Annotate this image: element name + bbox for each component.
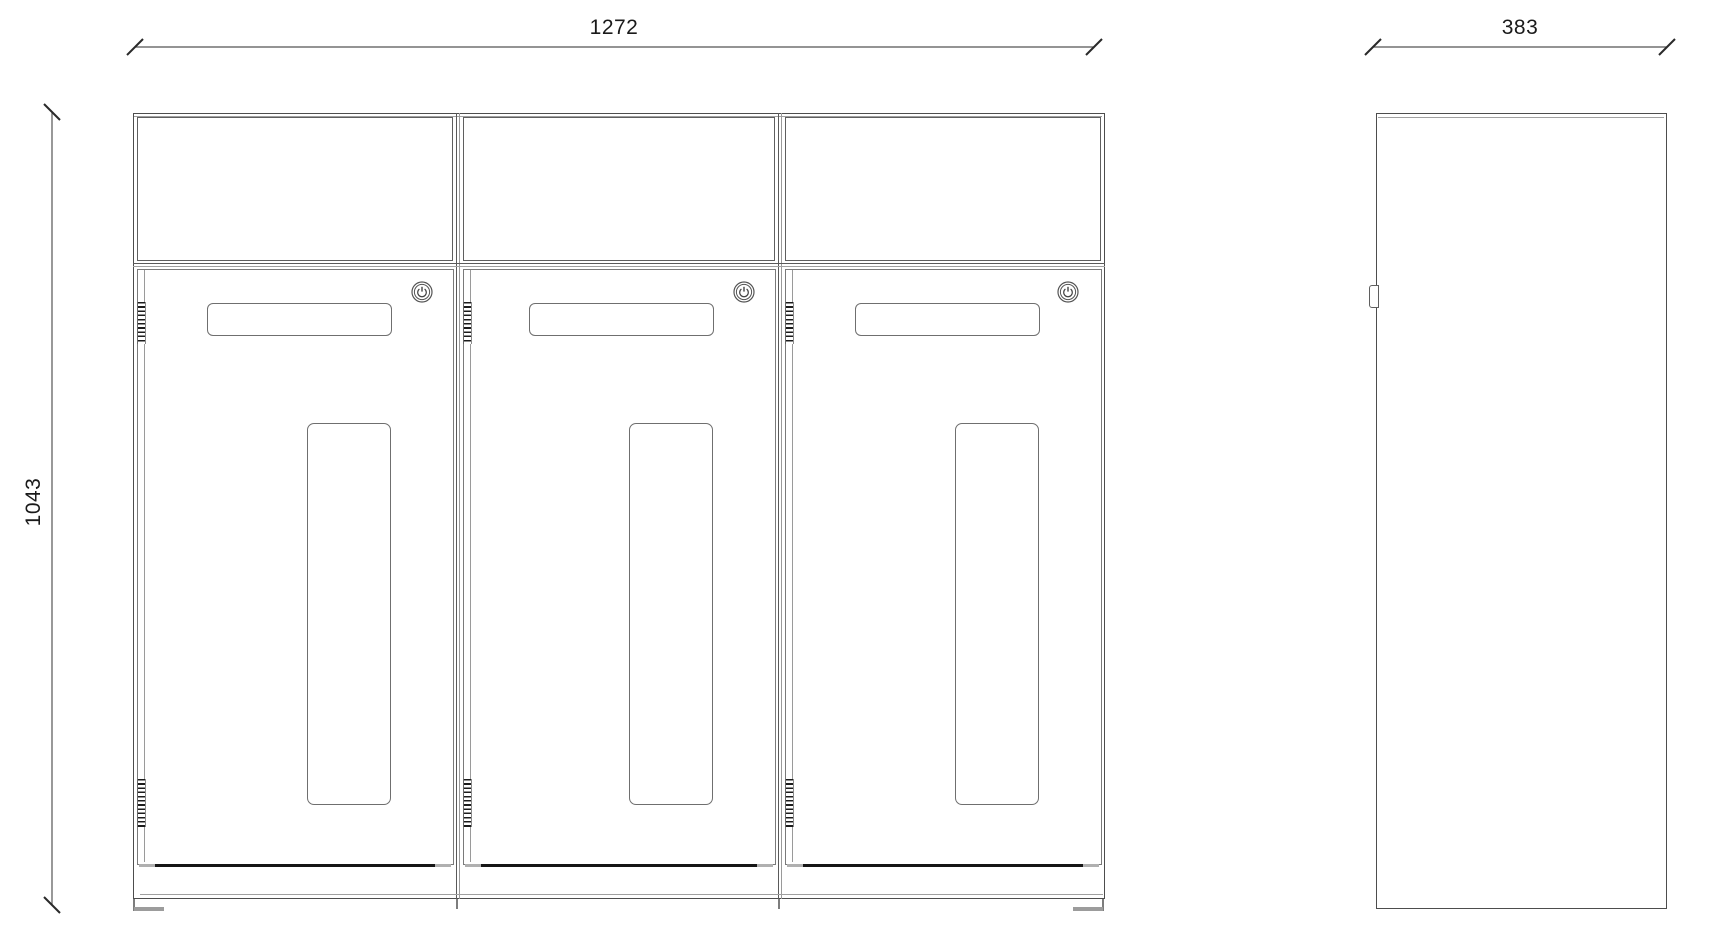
hinge-rib-band <box>137 302 146 344</box>
top-row-divider <box>133 266 1105 267</box>
compartment-divider <box>456 113 457 899</box>
top-panel <box>785 117 1101 261</box>
door-edge-line <box>792 270 793 862</box>
locker-door <box>463 269 776 865</box>
foot-bracket <box>134 907 164 911</box>
cam-lock-icon <box>411 281 433 303</box>
door-edge-line <box>144 270 145 862</box>
top-panel <box>463 117 775 261</box>
height-dimension-label: 1043 <box>22 440 46 564</box>
locker-door <box>137 269 454 865</box>
hinge-rib-band <box>463 302 472 344</box>
side-view-outline <box>1376 113 1667 909</box>
compartment-divider <box>781 113 782 899</box>
cam-lock-icon <box>733 281 755 303</box>
side-lock-latch <box>1369 285 1379 308</box>
label-holder <box>855 303 1040 336</box>
label-holder <box>207 303 392 336</box>
foot-bracket <box>1073 907 1103 911</box>
door-bottom-gap <box>787 864 1099 867</box>
front-width-dimension-label: 1272 <box>133 16 1095 40</box>
handle-recess <box>307 423 391 805</box>
hinge-rib-band <box>785 302 794 344</box>
locker-door <box>785 269 1102 865</box>
top-panel <box>137 117 453 261</box>
compartment-divider <box>778 113 779 899</box>
hinge-rib-band <box>785 779 794 827</box>
leg <box>456 899 458 909</box>
side-top-inner-edge <box>1378 117 1664 118</box>
door-bottom-gap <box>465 864 773 867</box>
hinge-rib-band <box>463 779 472 827</box>
leg <box>778 899 780 909</box>
side-depth-dimension-label: 383 <box>1373 16 1667 40</box>
technical-drawing-canvas: 1272 383 1043 <box>0 0 1712 938</box>
compartment-divider <box>459 113 460 899</box>
door-bottom-gap <box>139 864 451 867</box>
plinth-line <box>140 894 1103 895</box>
hinge-rib-band <box>137 779 146 827</box>
label-holder <box>529 303 714 336</box>
top-row-divider <box>133 263 1105 264</box>
handle-recess <box>955 423 1039 805</box>
cam-lock-icon <box>1057 281 1079 303</box>
handle-recess <box>629 423 713 805</box>
door-edge-line <box>470 270 471 862</box>
